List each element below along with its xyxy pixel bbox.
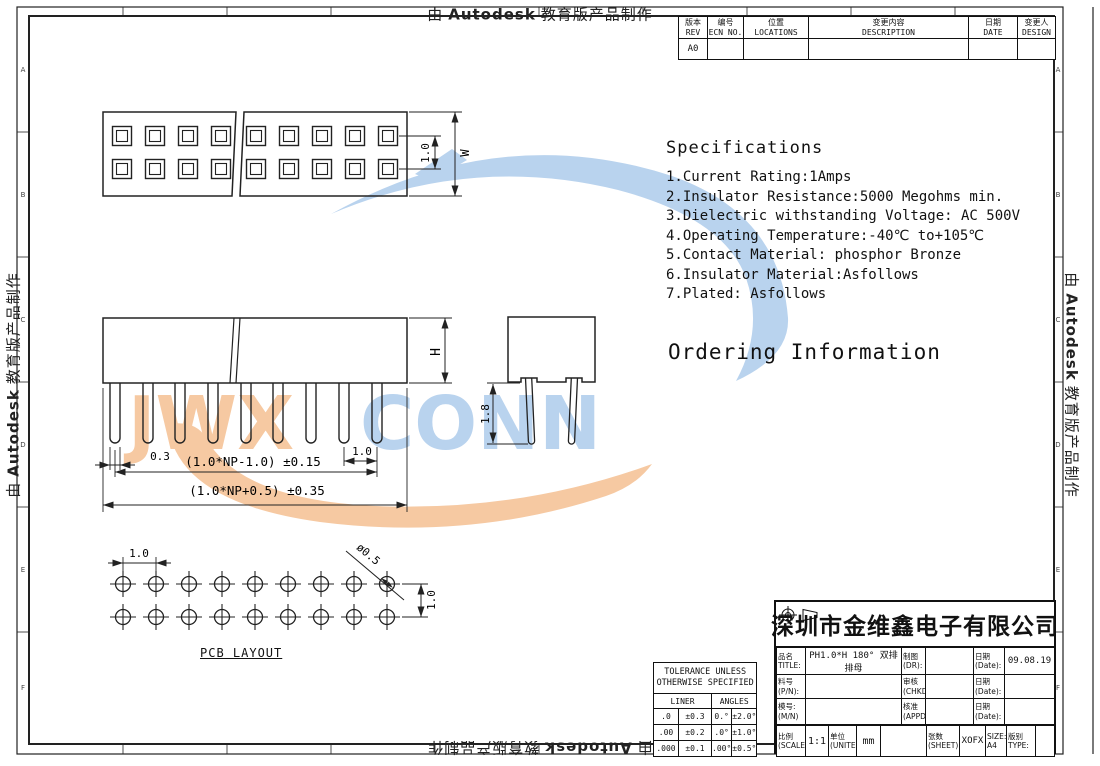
spec-item: 1.Current Rating:1Amps [666, 168, 1066, 188]
dim-pin-width: 0.3 [150, 450, 170, 463]
dim-pin-pitch: 1.0 [352, 445, 372, 458]
dim-pin-span: (1.0*NP-1.0) ±0.15 [185, 454, 320, 469]
specifications-block: Specifications 1.Current Rating:1Amps 2.… [666, 138, 1066, 305]
liner-header: LINER [654, 694, 712, 709]
ecn-header: 编号ECN NO. [708, 17, 744, 39]
scale-label: 比例(SCALE) [777, 726, 806, 757]
title-block: 深圳市金维鑫电子有限公司 品名TITLE: PH1.0*H 180° 双排排母 … [774, 600, 1056, 754]
tolerance-title: TOLERANCE UNLESSOTHERWISE SPECIFIED [654, 663, 757, 694]
date-label: 日期(Date): [974, 675, 1005, 699]
rev-value: A0 [679, 39, 708, 60]
autodesk-brand: Autodesk [5, 389, 23, 477]
chkd-label: 审核(CHKD): [902, 675, 926, 699]
part-title-value: PH1.0*H 180° 双排排母 [806, 648, 902, 675]
svg-text:C: C [1056, 316, 1061, 324]
ordering-information-title: Ordering Information [668, 340, 941, 364]
engineering-drawing-page: JWX CONN A B C D E F [0, 0, 1100, 766]
dim-height-h: H [429, 348, 444, 356]
tolerance-row: .00±0.2.0°±1.0° [654, 725, 757, 741]
dim-hole-pitch-h: 1.0 [129, 547, 149, 560]
autodesk-banner-left: 由Autodesk教育版产品制作 [3, 272, 24, 498]
svg-text:D: D [1055, 441, 1060, 449]
autodesk-brand: Autodesk [448, 6, 536, 24]
dim-width-w: W [458, 149, 472, 157]
sheet-label: 张数(SHEET): [927, 726, 960, 757]
autodesk-banner-right: 由Autodesk教育版产品制作 [1062, 272, 1083, 498]
spec-item: 7.Plated: Asfollows [666, 285, 1066, 305]
locations-header: 位置LOCATIONS [744, 17, 809, 39]
autodesk-brand: Autodesk [544, 739, 632, 757]
angles-header: ANGLES [712, 694, 757, 709]
dim-hole-pitch-v: 1.0 [425, 590, 438, 610]
description-header: 变更内容DESCRIPTION [809, 17, 969, 39]
rev-header: 版本REV [679, 17, 708, 39]
svg-text:A: A [21, 66, 26, 74]
spec-item: 6.Insulator Material:Asfollows [666, 266, 1066, 286]
unit-value: mm [857, 726, 881, 757]
pn-label: 料号(P/N): [777, 675, 806, 699]
size-value: A4 [987, 741, 997, 750]
date-header: 日期DATE [969, 17, 1018, 39]
svg-text:E: E [21, 566, 25, 574]
tolerance-row: .000±0.1.00°±0.5° [654, 741, 757, 757]
title-block-info: 品名TITLE: PH1.0*H 180° 双排排母 制图(DR): 日期(Da… [776, 647, 1055, 725]
revision-row: A0 [679, 39, 1056, 60]
dim-pin-length: 1.8 [479, 404, 492, 424]
mn-label: 模号:(M/N) [777, 699, 806, 725]
tolerance-row: .0±0.30.°±2.0° [654, 709, 757, 725]
dim-overall-length: (1.0*NP+0.5) ±0.35 [189, 483, 324, 498]
type-label: 版别TYPE: [1007, 726, 1036, 757]
revision-table: 版本REV 编号ECN NO. 位置LOCATIONS 变更内容DESCRIPT… [678, 16, 1056, 60]
specifications-title: Specifications [666, 138, 1066, 158]
svg-text:F: F [21, 684, 25, 692]
svg-text:E: E [1056, 566, 1060, 574]
unit-label: 单位(UNITE) [829, 726, 857, 757]
title-block-scale-row: 比例(SCALE) 1:1 单位(UNITE) mm 张数(SHEET): XO… [776, 725, 1055, 757]
svg-text:A: A [1056, 66, 1061, 74]
dr-label: 制图(DR): [902, 648, 926, 675]
spec-item: 3.Dielectric withstanding Voltage: AC 50… [666, 207, 1066, 227]
date-label: 日期(Date): [974, 648, 1005, 675]
autodesk-banner-top: 由Autodesk教育版产品制作 [427, 4, 653, 25]
tolerance-table: TOLERANCE UNLESSOTHERWISE SPECIFIED LINE… [653, 662, 757, 757]
pcb-layout-view: 1.0 ø0.5 1.0 [108, 541, 438, 630]
appd-label: 核准(APPD): [902, 699, 926, 725]
svg-text:B: B [21, 191, 26, 199]
scale-value: 1:1 [806, 726, 829, 757]
date-value: 09.08.19 [1005, 648, 1055, 675]
title-label: 品名TITLE: [777, 648, 806, 675]
date-label: 日期(Date): [974, 699, 1005, 725]
design-header: 变更人DESIGN [1018, 17, 1056, 39]
svg-text:F: F [1056, 684, 1060, 692]
spec-item: 4.Operating Temperature:-40℃ to+105℃ [666, 227, 1066, 247]
pcb-layout-label: PCB LAYOUT [200, 646, 282, 660]
spec-item: 5.Contact Material: phosphor Bronze [666, 246, 1066, 266]
autodesk-brand: Autodesk [1063, 293, 1081, 381]
sheet-value: XOFX [960, 726, 986, 757]
spec-item: 2.Insulator Resistance:5000 Megohms min. [666, 188, 1066, 208]
autodesk-banner-bottom: 由Autodesk教育版产品制作 [427, 738, 653, 759]
dim-row-pitch: 1.0 [419, 143, 432, 163]
projection-symbols [881, 726, 927, 757]
size-label: SIZE:A4 [986, 726, 1007, 757]
dim-hole-diameter: ø0.5 [354, 541, 383, 568]
